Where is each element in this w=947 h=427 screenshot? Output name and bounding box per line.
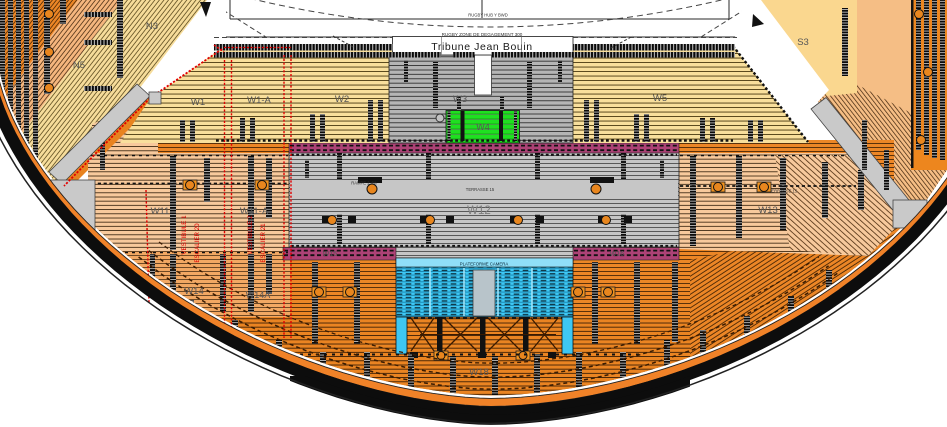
svg-text:W15: W15 bbox=[323, 251, 338, 258]
svg-text:Tribune Jean Bouin: Tribune Jean Bouin bbox=[431, 41, 532, 53]
svg-text:W5: W5 bbox=[653, 93, 667, 104]
svg-text:W12: W12 bbox=[467, 205, 491, 217]
svg-text:PLATEFORME CAMERA: PLATEFORME CAMERA bbox=[460, 261, 509, 266]
svg-text:TERRASSE 15: TERRASSE 15 bbox=[769, 189, 798, 194]
svg-text:ESCALIER 20: ESCALIER 20 bbox=[194, 223, 201, 263]
svg-text:N3: N3 bbox=[146, 21, 158, 32]
svg-text:W11-A: W11-A bbox=[240, 206, 269, 217]
svg-text:S3: S3 bbox=[797, 37, 809, 48]
svg-text:W14: W14 bbox=[184, 286, 204, 297]
svg-text:VESTIBULE 2: VESTIBULE 2 bbox=[247, 215, 254, 255]
svg-text:ESCALIER 21: ESCALIER 21 bbox=[260, 223, 267, 263]
svg-text:W18: W18 bbox=[469, 367, 489, 378]
svg-text:W11: W11 bbox=[151, 206, 170, 217]
svg-text:RUGBY HUB Y BWD: RUGBY HUB Y BWD bbox=[468, 13, 508, 18]
svg-text:W13: W13 bbox=[758, 205, 778, 216]
svg-text:W16: W16 bbox=[610, 251, 625, 258]
svg-text:N5: N5 bbox=[73, 60, 85, 71]
svg-text:W3: W3 bbox=[453, 94, 467, 105]
svg-text:W4: W4 bbox=[476, 122, 490, 132]
svg-text:W1: W1 bbox=[191, 97, 205, 108]
svg-text:W14A: W14A bbox=[246, 290, 271, 300]
svg-text:W1-A: W1-A bbox=[247, 95, 271, 106]
svg-text:VESTIBULE 1: VESTIBULE 1 bbox=[181, 215, 188, 255]
svg-text:W2: W2 bbox=[335, 94, 349, 105]
svg-text:TERRASSE 15: TERRASSE 15 bbox=[466, 187, 495, 192]
svg-text:RUGBY ZONE DE DEGAGEMENT 300: RUGBY ZONE DE DEGAGEMENT 300 bbox=[442, 32, 523, 37]
